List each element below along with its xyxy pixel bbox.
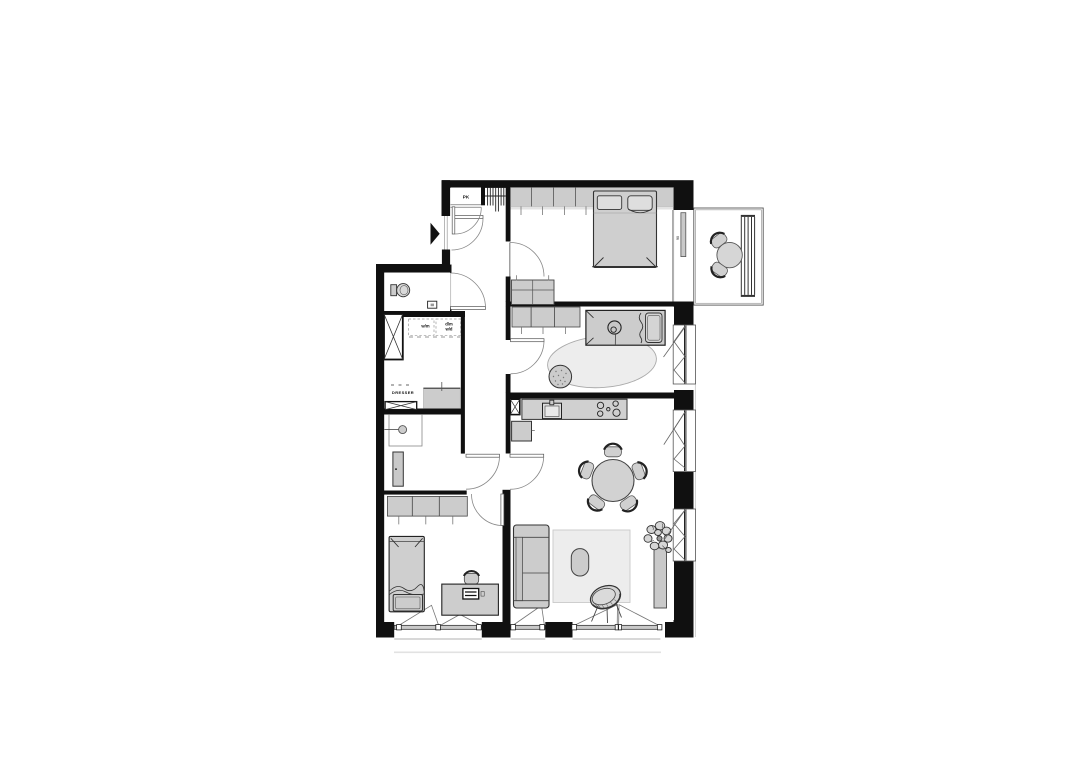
svg-text:PK: PK — [463, 195, 470, 200]
svg-text:90: 90 — [676, 236, 680, 240]
svg-text:DRESSER: DRESSER — [392, 390, 414, 395]
svg-text:w/m: w/m — [420, 323, 429, 328]
svg-text:w/d: w/d — [445, 326, 453, 331]
